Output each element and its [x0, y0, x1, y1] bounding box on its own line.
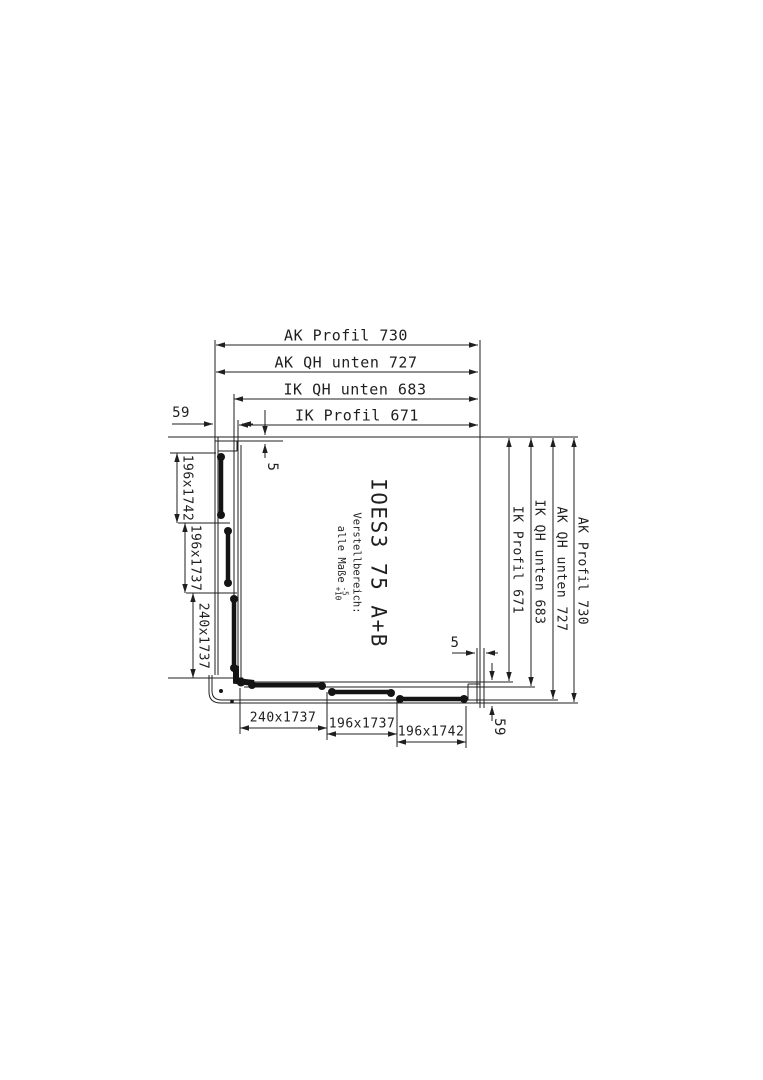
tolerance-minus: -5 [341, 587, 349, 601]
adjustment-note-line1: Verstellbereich: [351, 478, 362, 648]
dim-top-ak-profil: AK Profil 730 [284, 329, 408, 344]
dim-right-ik-qh-unten: IK QH unten 683 [533, 500, 546, 625]
dim-bottom-right: 196x1742 [398, 726, 465, 739]
dim-left-middle: 196x1737 [189, 525, 202, 592]
dim-offset-59-top-left: 59 [172, 406, 190, 420]
dim-right-ak-qh-unten: AK QH unten 727 [555, 507, 568, 632]
dim-bottom-middle: 196x1737 [329, 718, 396, 731]
drawing-page: AK Profil 730 AK QH unten 727 IK QH unte… [0, 0, 763, 1080]
dim-right-ak-profil: AK Profil 730 [576, 517, 589, 625]
adjustment-note-line2: alle Maße-5+10 [334, 478, 349, 648]
adjustment-note-text: alle Maße [335, 526, 347, 583]
tolerance-plus: +10 [334, 587, 342, 601]
dim-gap-5-top: 5 [265, 463, 279, 472]
dim-offset-59-bottom-right: 59 [492, 718, 506, 736]
dim-top-ak-qh-unten: AK QH unten 727 [275, 356, 418, 371]
model-label: IOES3 75 A+B [367, 478, 388, 648]
dim-right-ik-profil: IK Profil 671 [511, 506, 524, 614]
tolerance-stack: -5+10 [334, 587, 349, 601]
model-note-block: IOES3 75 A+B Verstellbereich: alle Maße-… [334, 478, 389, 648]
dim-top-ik-profil: IK Profil 671 [295, 409, 419, 424]
dim-top-ik-qh-unten: IK QH unten 683 [284, 383, 427, 398]
dim-bottom-left: 240x1737 [250, 712, 317, 725]
dim-gap-5-bottom-right: 5 [451, 636, 460, 650]
dim-left-lower: 240x1737 [197, 603, 210, 670]
dim-left-upper: 196x1742 [181, 455, 194, 522]
